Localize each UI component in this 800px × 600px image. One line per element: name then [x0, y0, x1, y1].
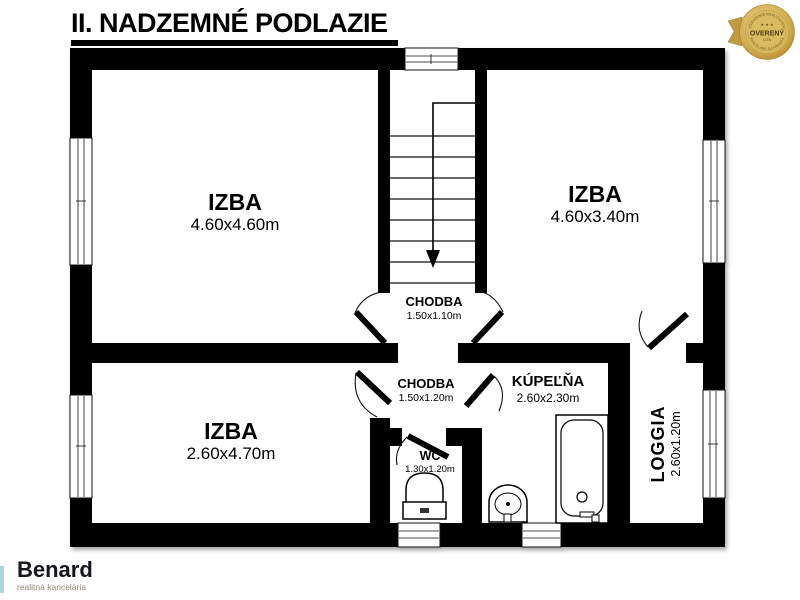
window [70, 395, 92, 498]
room-label-izba-top-left: IZBA 4.60x4.60m [191, 190, 280, 234]
room-name: CHODBA [397, 377, 454, 391]
room-label-izba-bottom-left: IZBA 2.60x4.70m [187, 419, 276, 463]
room-dims: 2.60x1.20m [670, 406, 683, 483]
bathtub-icon [556, 415, 608, 523]
room-name: CHODBA [405, 295, 462, 309]
badge-main-label: OVERENÝ [750, 29, 785, 38]
room-label-wc: WC 1.30x1.20m [405, 450, 455, 475]
wall-top [70, 48, 725, 70]
floorplan-page: II. NADZEMNÉ PODLAZIE IZBA 4.60x4.60m IZ… [0, 0, 800, 600]
page-title: II. NADZEMNÉ PODLAZIE [71, 8, 388, 39]
window [405, 48, 458, 70]
wall-izba-wc [370, 418, 390, 523]
agency-logo: Benard realitná kancelária [17, 559, 93, 592]
floor-plan [0, 0, 800, 600]
agency-logo-name: Benard [17, 559, 93, 581]
toilet-icon [403, 473, 446, 519]
wall-loggia-stub [686, 343, 703, 363]
room-label-chodba-lower: CHODBA 1.50x1.20m [397, 377, 454, 404]
room-dims: 4.60x3.40m [551, 208, 640, 226]
wall-wc-stub-left [390, 428, 402, 446]
room-name: IZBA [191, 190, 280, 214]
room-dims: 2.60x2.30m [512, 392, 585, 405]
title-underline [71, 40, 398, 46]
room-label-chodba-upper: CHODBA 1.50x1.10m [405, 295, 462, 322]
badge-sublabel: ČLEN [763, 37, 772, 42]
window [703, 140, 725, 263]
room-label-kupelna: KÚPEĽŇA 2.60x2.30m [512, 374, 585, 404]
room-label-loggia: LOGGIA 2.60x1.20m [649, 406, 683, 483]
room-dims: 4.60x4.60m [191, 216, 280, 234]
wall-wc-stub-right [446, 428, 462, 446]
wall-wc-kupelna [462, 428, 482, 523]
wall-kupelna-loggia [608, 363, 630, 523]
room-dims: 1.50x1.10m [405, 311, 462, 322]
certification-badge: ZDRUŽENIE REALITNÝCH KANCELÁRIÍ SLOVENSK… [726, 2, 798, 64]
window [398, 523, 440, 547]
room-name: WC [405, 450, 455, 463]
wall-mid-left [70, 343, 398, 363]
room-name: IZBA [551, 182, 640, 206]
badge-stars: ★ ★ ★ [760, 22, 774, 27]
agency-logo-tagline: realitná kancelária [17, 582, 93, 592]
room-label-izba-top-right: IZBA 4.60x3.40m [551, 182, 640, 226]
sink-icon [489, 485, 527, 522]
window [70, 138, 92, 265]
window-loggia-railing [703, 390, 725, 498]
room-name: KÚPEĽŇA [512, 374, 585, 390]
logo-accent-bar [0, 566, 4, 593]
wall-mid-right [458, 343, 630, 363]
wall-stair-right [475, 70, 487, 293]
room-name: LOGGIA [649, 406, 668, 483]
wall-stair-left [378, 70, 390, 293]
room-name: IZBA [187, 419, 276, 443]
room-dims: 1.50x1.20m [397, 393, 454, 404]
room-dims: 1.30x1.20m [405, 465, 455, 475]
window [522, 523, 561, 547]
room-dims: 2.60x4.70m [187, 445, 276, 463]
